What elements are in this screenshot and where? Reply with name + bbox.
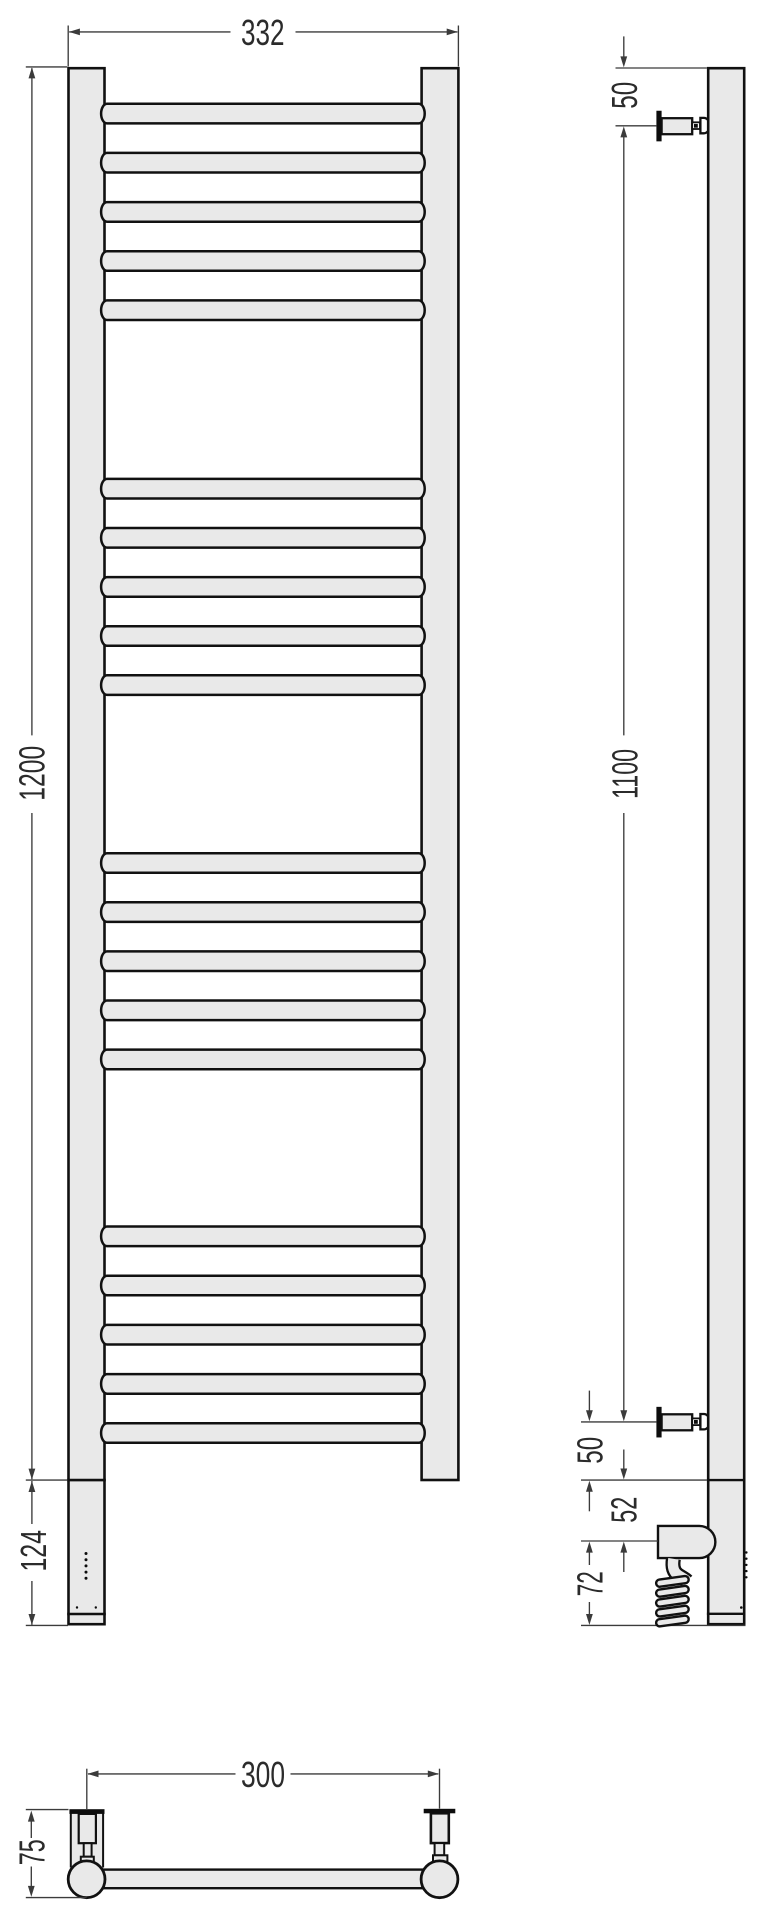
svg-text:332: 332 [241,12,285,53]
svg-text:52: 52 [604,1497,645,1523]
svg-text:300: 300 [241,1754,285,1795]
svg-text:72: 72 [570,1571,611,1596]
svg-text:1100: 1100 [604,749,645,799]
svg-text:50: 50 [604,82,645,109]
svg-text:124: 124 [13,1530,54,1572]
svg-text:50: 50 [570,1437,611,1464]
svg-text:1200: 1200 [12,746,53,801]
svg-text:75: 75 [11,1839,52,1865]
